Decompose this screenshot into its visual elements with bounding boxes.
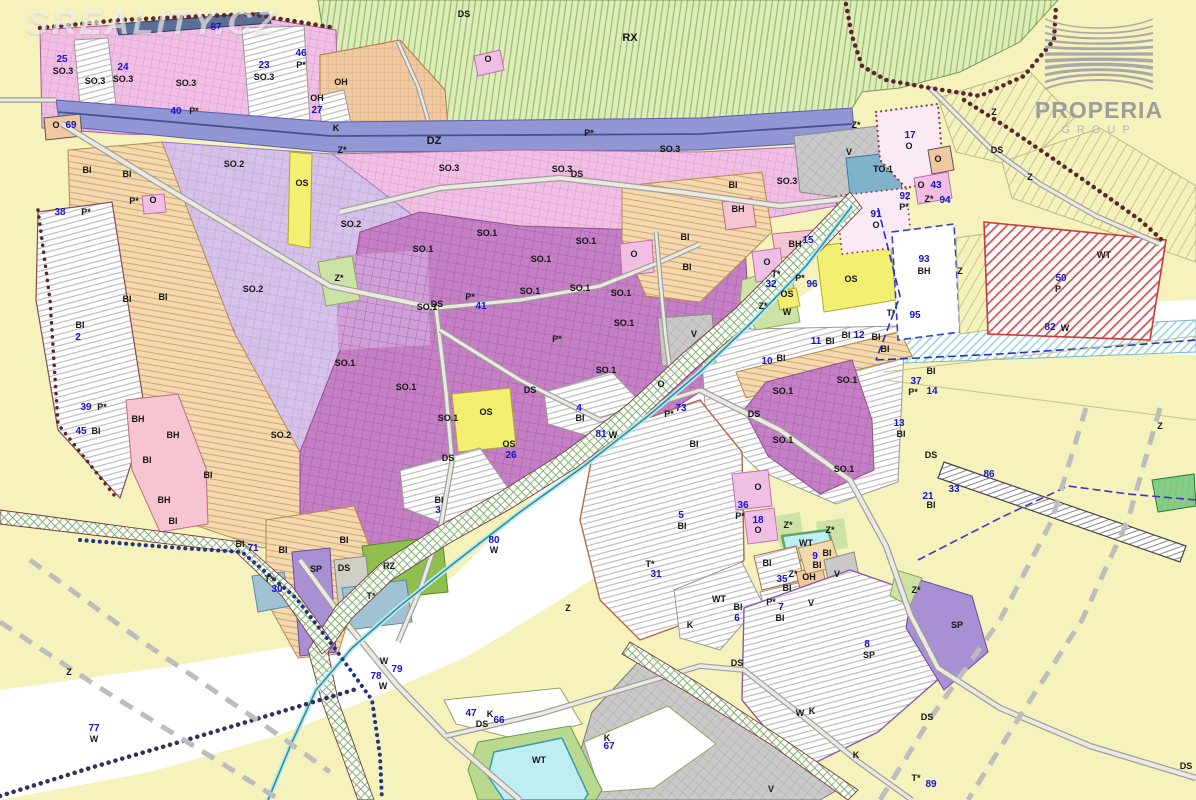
zone-code-label: V	[691, 329, 697, 339]
plot-number-label: 73	[675, 403, 687, 414]
zone-code-label: OS	[479, 407, 492, 417]
zone-code-label: W	[490, 545, 499, 555]
plot-number-label: 10	[761, 356, 773, 367]
plot-number-label: 5	[678, 510, 684, 521]
zone-code-label: Z*	[335, 273, 344, 283]
zone-code-label: V	[808, 598, 814, 608]
zone-code-label: BH	[167, 430, 180, 440]
plot-number-label: 46	[295, 48, 307, 59]
zone-outline-p-50-red-hatch	[984, 222, 1166, 340]
zone-code-label: T*	[265, 574, 274, 584]
zone-code-label: SP	[310, 564, 322, 574]
zoning-map: 25SO.3SO.324SO.3SO.323SO.346P*8740P*OHOH…	[0, 0, 1196, 800]
zone-code-label: P*	[81, 207, 91, 217]
zone-code-label: SP	[951, 620, 963, 630]
zone-code-label: BI	[881, 344, 890, 354]
zone-code-label: T*	[367, 591, 376, 601]
zone-code-label: BI	[842, 330, 851, 340]
zone-code-label: BI	[690, 439, 699, 449]
zone-code-label: Z	[66, 667, 72, 677]
zone-code-label: SO.1	[773, 386, 794, 396]
plot-number-label: 39	[80, 402, 92, 413]
zone-code-label: W	[796, 708, 805, 718]
plot-number-label: 17	[904, 130, 916, 141]
plot-number-label: 38	[54, 207, 66, 218]
zone-code-label: SO.1	[576, 236, 597, 246]
zone-code-label: BH	[732, 204, 745, 214]
zone-code-label: W	[379, 681, 388, 691]
plot-number-label: 26	[505, 450, 517, 461]
zone-code-label: DS	[748, 409, 761, 419]
zone-code-label: OH	[310, 93, 324, 103]
plot-number-label: 93	[918, 254, 930, 265]
plot-number-label: 86	[983, 469, 995, 480]
plot-number-label: 77	[88, 723, 100, 734]
zone-code-label: SO.1	[773, 435, 794, 445]
zone-code-label: P*	[552, 334, 562, 344]
zone-code-label: O	[149, 195, 156, 205]
zone-code-label: O	[872, 220, 879, 230]
plot-number-label: 3	[435, 505, 441, 516]
zone-code-label: P*	[664, 409, 674, 419]
zone-code-label: P*	[97, 402, 107, 412]
zone-code-label: TO.1	[873, 164, 893, 174]
zone-code-label: RZ	[383, 561, 395, 571]
plot-number-label: 27	[311, 105, 323, 116]
zone-code-label: BI	[340, 535, 349, 545]
zone-code-label: O	[52, 120, 59, 130]
zone-code-label: P*	[899, 202, 909, 212]
zone-code-label: O	[484, 54, 491, 64]
plot-number-label: 89	[925, 779, 937, 790]
logo-arc	[1045, 26, 1153, 33]
zone-code-label: BI	[734, 602, 743, 612]
zone-code-label: DS	[921, 712, 934, 722]
zone-code-label: SO.1	[520, 286, 541, 296]
zone-code-label: SO.1	[396, 382, 417, 392]
plot-number-label: 43	[930, 180, 942, 191]
zone-code-label: BI	[927, 366, 936, 376]
zone-code-label: SO.3	[85, 76, 106, 86]
zone-code-label: O	[657, 379, 664, 389]
zone-code-label: Z*	[338, 145, 347, 155]
zone-code-label: BI	[763, 558, 772, 568]
zone-code-label: O	[754, 525, 761, 535]
plot-number-label: 47	[465, 708, 477, 719]
zone-code-label: Z*	[925, 194, 934, 204]
zone-code-label: BH	[789, 239, 802, 249]
zone-code-label: K	[333, 123, 340, 133]
zone-code-label: BI	[783, 583, 792, 593]
zone-code-label: SO.1	[531, 254, 552, 264]
zone-code-label: Z	[991, 107, 997, 117]
zone-code-label: BI	[927, 500, 936, 510]
zone-code-label: SO.3	[53, 66, 74, 76]
zone-code-label: K	[687, 620, 694, 630]
zone-code-label: OS	[502, 439, 515, 449]
zone-os-sliver	[288, 152, 312, 248]
zone-code-label: T*	[912, 773, 921, 783]
zone-code-label: P*	[766, 597, 776, 607]
zone-code-label: SO.3	[254, 72, 275, 82]
zone-code-label: K	[853, 750, 860, 760]
zone-code-label: SO.3	[552, 164, 573, 174]
zone-code-label: P*	[735, 511, 745, 521]
zone-code-label: SO.3	[176, 78, 197, 88]
zone-code-label: P*	[189, 106, 199, 116]
zone-code-label: DS	[731, 658, 744, 668]
logo-arc	[1045, 40, 1153, 44]
zone-code-label: SO.2	[271, 430, 292, 440]
zone-code-label: V	[834, 569, 840, 579]
zone-code-label: DS	[458, 9, 471, 19]
zone-code-label: WT	[532, 755, 546, 765]
zone-outline-so3-parcel-23	[242, 26, 310, 126]
zone-code-label: T*	[772, 269, 781, 279]
zone-code-label: BI	[143, 455, 152, 465]
zone-code-label: P*	[129, 196, 139, 206]
zone-code-label: V	[846, 147, 852, 157]
zone-code-label: Z*	[784, 520, 793, 530]
plot-number-label: 7	[778, 602, 784, 613]
properia-logo-subtitle: GROUP	[1014, 124, 1184, 136]
plot-number-label: 6	[734, 613, 740, 624]
plot-number-label: 32	[765, 279, 777, 290]
plot-number-label: 14	[926, 386, 938, 397]
zone-code-label: SO.3	[113, 74, 134, 84]
zone-code-label: BI	[279, 545, 288, 555]
plot-number-label: 66	[493, 715, 505, 726]
zone-code-label: BI	[729, 180, 738, 190]
properia-logo-emblem	[1041, 14, 1157, 98]
zone-code-label: O	[934, 154, 941, 164]
plot-number-label: 67	[603, 741, 615, 752]
plot-number-label: 45	[75, 426, 87, 437]
zone-code-label: BI	[897, 429, 906, 439]
zone-code-label: DS	[524, 385, 537, 395]
zone-code-label: BI	[826, 336, 835, 346]
plot-number-label: 50	[1055, 273, 1067, 284]
plot-number-label: 41	[475, 301, 487, 312]
plot-number-label: 71	[247, 543, 259, 554]
plot-number-label: 94	[939, 195, 951, 206]
zone-bh-93-block	[892, 224, 960, 340]
zone-code-label: DS	[925, 450, 938, 460]
zone-code-label: OH	[802, 572, 816, 582]
plot-number-label: 91	[870, 209, 882, 220]
zone-code-label: OS	[844, 274, 857, 284]
zone-code-label: W	[783, 307, 792, 317]
zone-code-label: BI	[169, 516, 178, 526]
properia-logo-title: PROPERIA	[1014, 98, 1184, 122]
zone-code-label: BI	[236, 539, 245, 549]
zone-code-label: SO.1	[438, 413, 459, 423]
zone-code-label: SO.3	[660, 144, 681, 154]
logo-arc	[1045, 47, 1153, 49]
plot-number-label: 81	[595, 429, 607, 440]
zone-code-label: BH	[132, 414, 145, 424]
zone-code-label: SO.1	[596, 365, 617, 375]
plot-number-label: 15	[802, 235, 814, 246]
zone-code-label: BI	[123, 294, 132, 304]
zone-code-label: OH	[334, 77, 348, 87]
zone-code-label: Z	[1027, 172, 1033, 182]
plot-number-label: 37	[910, 376, 922, 387]
zone-code-label: SO.3	[439, 163, 460, 173]
zone-code-label: W	[380, 656, 389, 666]
zone-code-label: BI	[159, 292, 168, 302]
zone-code-label: Z*	[759, 301, 768, 311]
zone-code-label: BI	[92, 426, 101, 436]
logo-arc	[1045, 64, 1153, 68]
zone-code-label: Z*	[912, 585, 921, 595]
logo-arc	[1045, 19, 1153, 28]
zone-code-label: V	[768, 784, 774, 794]
zone-code-label: DZ	[427, 135, 442, 147]
zone-code-label: BI	[576, 413, 585, 423]
zone-code-label: O	[917, 180, 924, 190]
zone-code-label: BI	[683, 262, 692, 272]
plot-number-label: 69	[65, 120, 77, 131]
zone-code-label: DS	[442, 453, 455, 463]
logo-arc	[1045, 59, 1153, 61]
zone-code-label: Z*	[789, 569, 798, 579]
zone-outline-z-strip-right	[956, 234, 988, 334]
zone-code-label: SO.2	[224, 159, 245, 169]
zone-code-label: SO.1	[611, 288, 632, 298]
zone-code-label: WT	[1097, 250, 1111, 260]
plot-number-label: 96	[806, 279, 818, 290]
zone-code-label: BI	[204, 470, 213, 480]
zone-code-label: BI	[76, 320, 85, 330]
zone-code-label: DS	[1180, 761, 1193, 771]
zone-code-label: SO.3	[777, 176, 798, 186]
plot-number-label: 23	[258, 60, 270, 71]
zone-code-label: P*	[795, 273, 805, 283]
zone-outline-green-blocks-right	[1152, 474, 1196, 512]
zone-code-label: SO.1	[570, 283, 591, 293]
zone-code-label: SO.1	[477, 228, 498, 238]
zone-code-label: DS	[476, 719, 489, 729]
zone-code-label: OS	[295, 178, 308, 188]
plot-number-label: 8	[864, 639, 870, 650]
zone-code-label: BI	[681, 232, 690, 242]
zone-code-label: WT	[799, 538, 813, 548]
plot-number-label: 12	[853, 330, 865, 341]
zone-code-label: SO.1	[837, 375, 858, 385]
zone-code-label: O	[754, 482, 761, 492]
zone-code-label: BI	[435, 495, 444, 505]
plot-number-label: 92	[899, 191, 911, 202]
zone-code-label: DS	[991, 145, 1004, 155]
zone-code-label: Z	[1157, 421, 1163, 431]
plot-number-label: 82	[1044, 322, 1056, 333]
zone-code-label: Z	[957, 266, 963, 276]
zone-code-label: SO.2	[243, 284, 264, 294]
zone-code-label: Z*	[826, 525, 835, 535]
zone-code-label: DS	[431, 299, 444, 309]
zone-code-label: BI	[83, 165, 92, 175]
zone-code-label: W	[90, 734, 99, 744]
zone-code-label: W	[1061, 323, 1070, 333]
zone-code-label: SO.2	[341, 219, 362, 229]
zone-code-label: P*	[908, 387, 918, 397]
zone-code-label: SO.1	[834, 464, 855, 474]
zone-code-label: BH	[158, 495, 171, 505]
zone-code-label: RX	[622, 32, 638, 44]
zone-code-label: SP	[863, 650, 875, 660]
zone-code-label: T*	[646, 559, 655, 569]
zone-code-label: P*	[296, 60, 306, 70]
zone-code-label: BI	[678, 521, 687, 531]
zone-code-label: BI	[777, 353, 786, 363]
zone-code-label: O	[905, 141, 912, 151]
zone-code-label: SO.1	[335, 358, 356, 368]
zone-code-label: P*	[584, 128, 594, 138]
zone-code-label: BI	[123, 169, 132, 179]
plot-number-label: 25	[56, 54, 68, 65]
logo-arc	[1045, 80, 1153, 89]
zone-code-label: BH	[918, 266, 931, 276]
plot-number-label: 13	[893, 418, 905, 429]
zone-code-label: SO.1	[614, 318, 635, 328]
plot-number-label: 87	[210, 22, 222, 33]
zone-code-label: BI	[872, 332, 881, 342]
plot-number-label: 79	[391, 664, 403, 675]
plot-number-label: 11	[811, 336, 822, 347]
plot-number-label: 31	[650, 569, 662, 580]
plot-number-label: 40	[170, 106, 182, 117]
zone-code-label: BI	[823, 548, 832, 558]
zone-code-label: O	[630, 249, 637, 259]
plot-number-label: 95	[909, 310, 921, 321]
zone-code-label: DS	[338, 563, 351, 573]
properia-logo: PROPERIA GROUP	[1014, 14, 1184, 136]
zone-code-label: BI	[776, 613, 785, 623]
plot-number-label: 36	[737, 500, 749, 511]
zone-code-label: P*	[465, 292, 475, 302]
zone-code-label: Z*	[852, 120, 861, 130]
zone-code-label: T*	[887, 308, 896, 318]
zone-code-label: BI	[813, 560, 822, 570]
plot-number-label: 24	[117, 62, 129, 73]
plot-number-label: 30	[271, 584, 283, 595]
zone-code-label: K	[809, 706, 816, 716]
plot-number-label: 2	[75, 332, 81, 343]
zone-code-label: SO.1	[413, 244, 434, 254]
zone-code-label: P	[1055, 284, 1061, 294]
zone-code-label: W	[609, 430, 618, 440]
zone-code-label: O	[763, 257, 770, 267]
zone-code-label: WT	[712, 594, 726, 604]
zone-code-label: DS	[571, 169, 584, 179]
zone-code-label: Z	[565, 603, 571, 613]
plot-number-label: 33	[948, 484, 960, 495]
zone-code-label: OS	[780, 289, 793, 299]
